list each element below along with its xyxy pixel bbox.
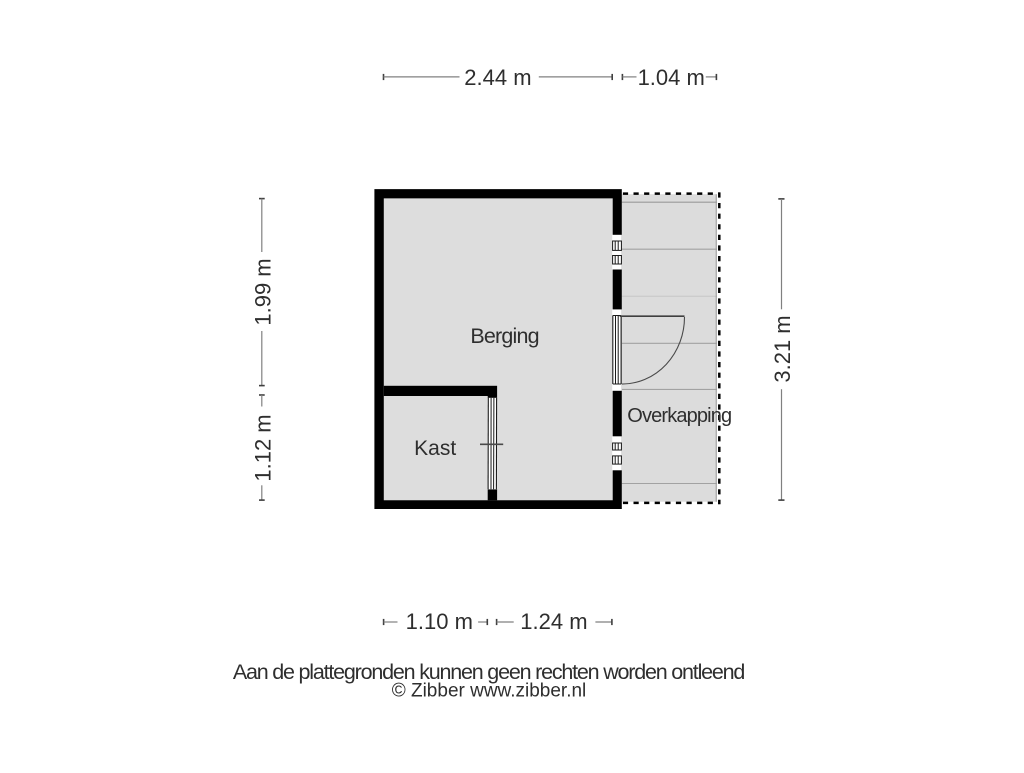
svg-text:1.12 m: 1.12 m [251, 414, 276, 481]
svg-text:2.44 m: 2.44 m [464, 65, 531, 90]
svg-text:1.24 m: 1.24 m [520, 609, 587, 634]
svg-text:1.10 m: 1.10 m [406, 609, 473, 634]
svg-text:3.21 m: 3.21 m [770, 315, 795, 382]
svg-text:1.99 m: 1.99 m [251, 258, 276, 325]
svg-text:© Zibber www.zibber.nl: © Zibber www.zibber.nl [392, 681, 587, 702]
svg-text:Overkapping: Overkapping [627, 405, 731, 427]
svg-text:Kast: Kast [414, 437, 456, 460]
svg-text:1.04 m: 1.04 m [638, 65, 705, 90]
svg-text:Berging: Berging [470, 324, 539, 348]
